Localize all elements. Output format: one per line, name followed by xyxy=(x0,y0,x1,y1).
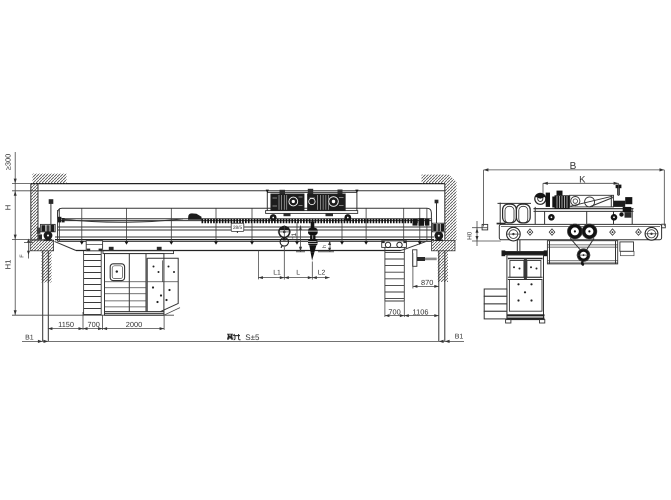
svg-text:700: 700 xyxy=(88,320,100,329)
svg-text:700: 700 xyxy=(388,308,400,317)
svg-text:B1: B1 xyxy=(25,334,34,341)
svg-text:H: H xyxy=(4,205,13,210)
svg-text:870: 870 xyxy=(421,278,433,287)
svg-text:1106: 1106 xyxy=(413,308,429,317)
svg-text:S±5: S±5 xyxy=(245,333,260,342)
svg-text:h: h xyxy=(322,245,328,248)
svg-text:B: B xyxy=(570,161,577,172)
svg-text:L: L xyxy=(296,269,300,276)
svg-text:K: K xyxy=(579,175,586,186)
svg-text:L1: L1 xyxy=(273,269,281,276)
svg-text:B1: B1 xyxy=(455,333,464,340)
svg-text:L2: L2 xyxy=(318,269,326,276)
svg-text:h1: h1 xyxy=(291,233,298,241)
svg-text:H1: H1 xyxy=(4,260,13,270)
svg-text:1150: 1150 xyxy=(58,320,74,329)
svg-text:2000: 2000 xyxy=(126,320,142,329)
svg-text:≥300: ≥300 xyxy=(4,154,13,170)
svg-text:H0: H0 xyxy=(467,231,474,240)
svg-text:28/5: 28/5 xyxy=(233,225,243,231)
